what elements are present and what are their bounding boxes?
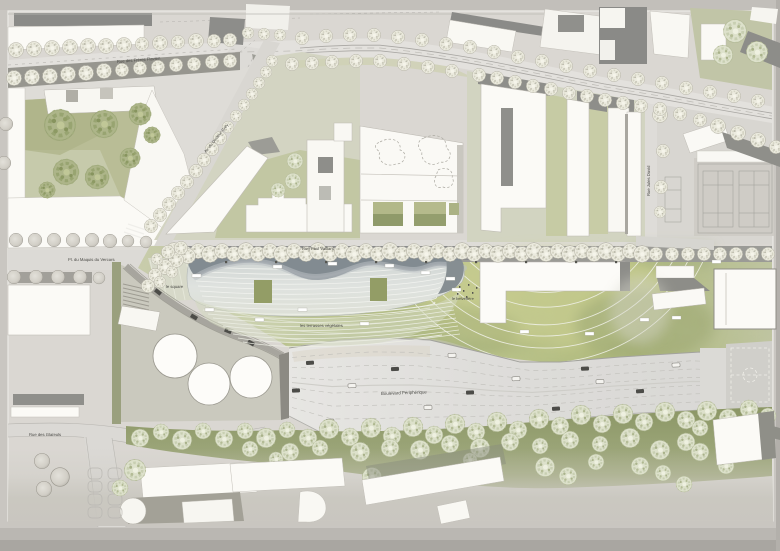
- svg-text:le belvédère: le belvédère: [452, 296, 475, 301]
- svg-text:Rue Paul Vaillant: Rue Paul Vaillant: [302, 246, 335, 251]
- svg-text:le square: le square: [166, 284, 184, 289]
- svg-text:Rue des Glaïeuls: Rue des Glaïeuls: [29, 432, 61, 437]
- svg-text:Rue Jules David: Rue Jules David: [646, 165, 651, 196]
- svg-text:Pl. du Maquis du Vercors: Pl. du Maquis du Vercors: [68, 257, 115, 262]
- svg-text:les terrasses végétales: les terrasses végétales: [300, 323, 343, 328]
